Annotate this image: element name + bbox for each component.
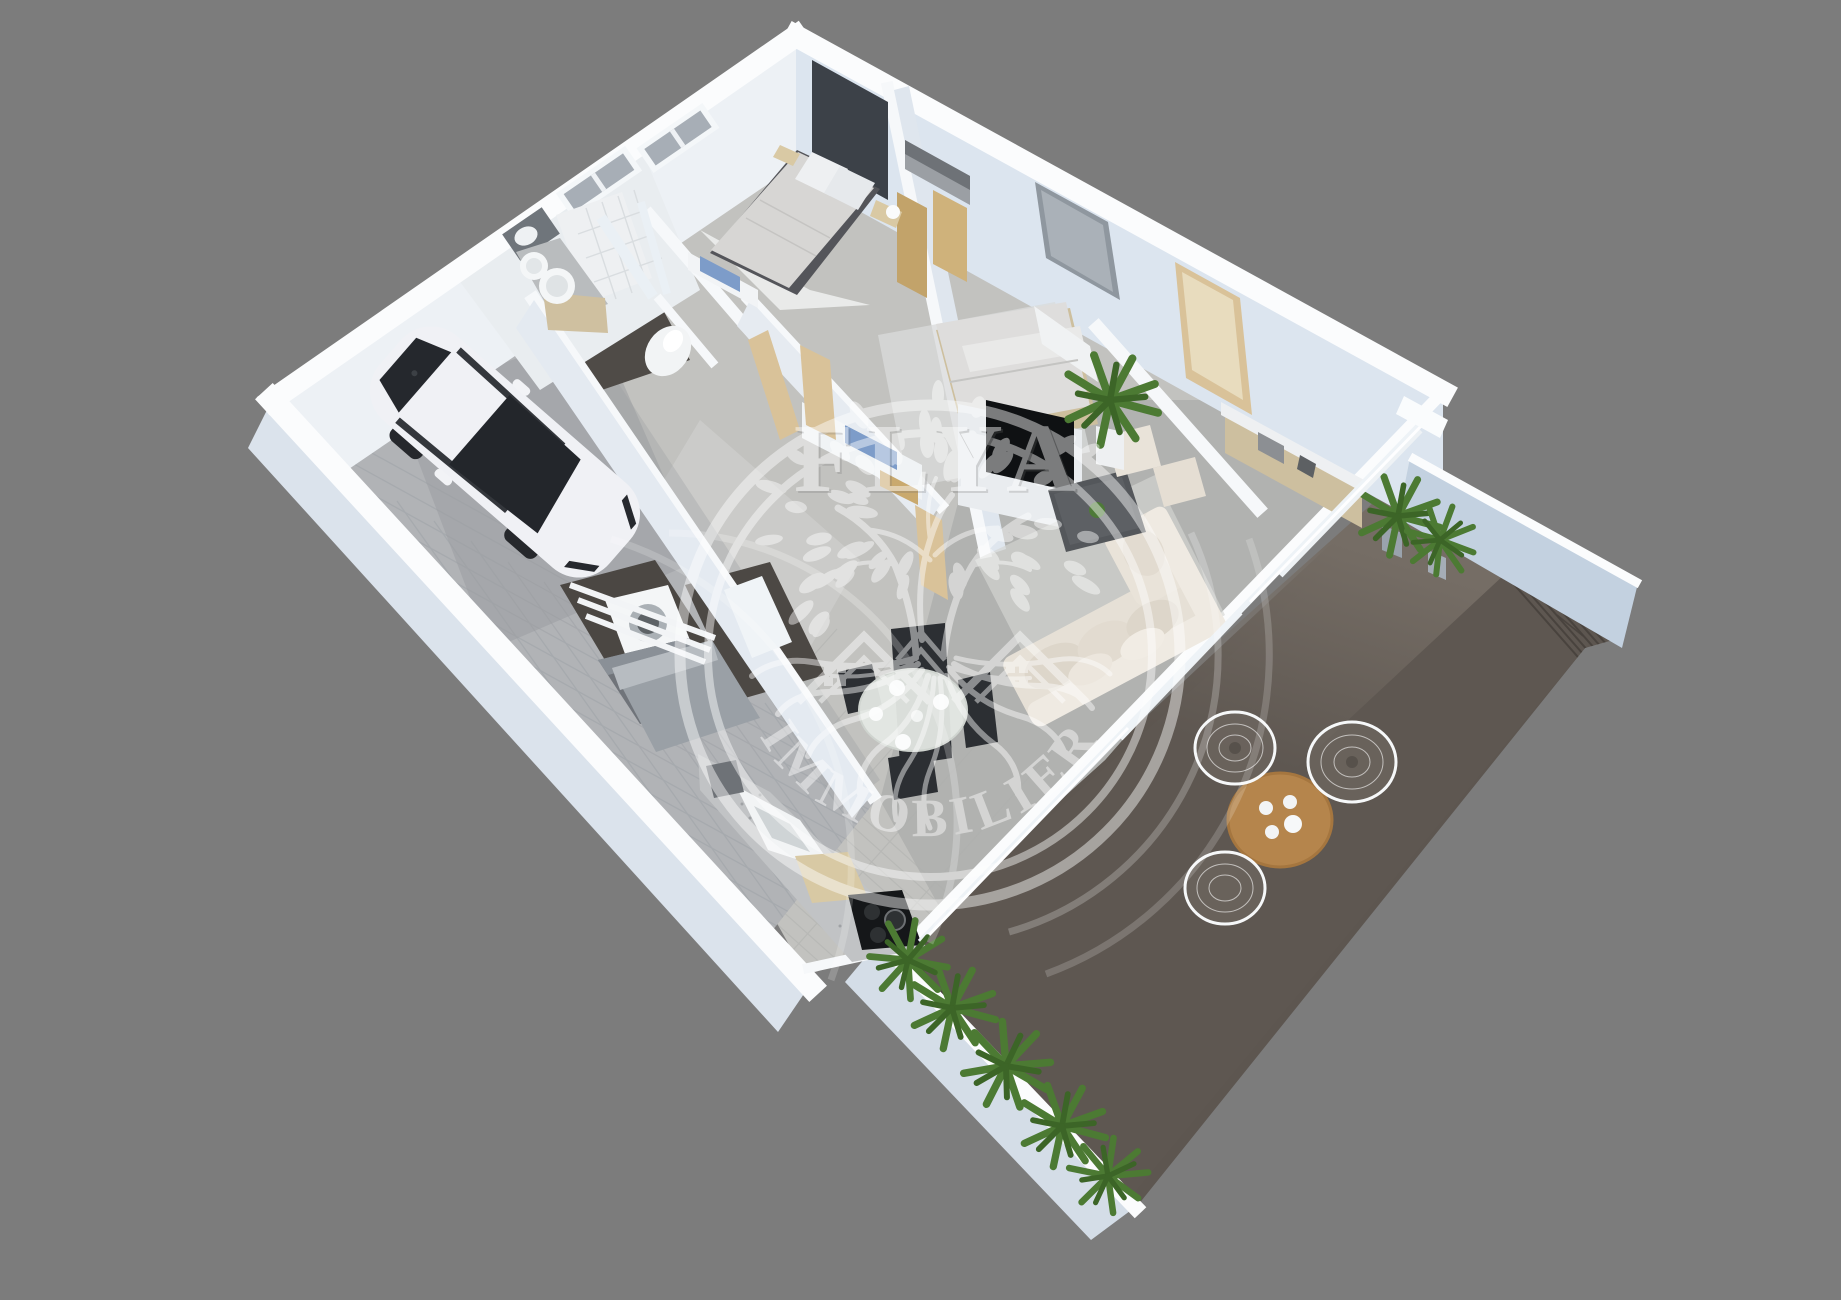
- svg-text:FLYA: FLYA: [794, 405, 1088, 512]
